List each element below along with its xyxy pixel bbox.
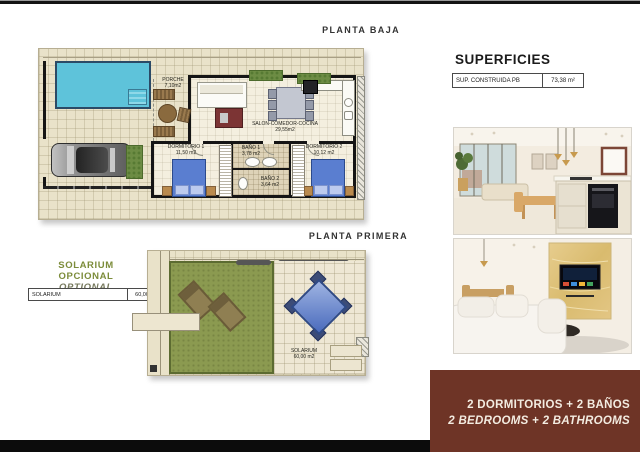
pillow xyxy=(329,185,343,195)
porch-chair-top xyxy=(153,89,175,100)
room-name: DORMITORIO 1 xyxy=(168,144,205,150)
washbasin-icon xyxy=(245,157,260,167)
footer-line-es: 2 DORMITORIOS + 2 BAÑOS xyxy=(430,397,630,413)
car-windshield xyxy=(67,146,74,174)
swimming-pool xyxy=(55,61,151,109)
ground-floor-title: PLANTA BAJA xyxy=(300,25,400,35)
kitchen-counter-side xyxy=(342,80,355,136)
media-unit-icon xyxy=(215,108,243,128)
superficies-label: SUP. CONSTRUIDA PB xyxy=(453,74,542,87)
dining-chair xyxy=(268,89,277,99)
kitchen-hob-icon xyxy=(344,111,353,120)
corner-pillar xyxy=(150,365,157,372)
neighbour-plot-hatch xyxy=(357,76,365,200)
ground-floor-plan: PORCHE 7,10m2 xyxy=(38,48,364,220)
photo-living-tv xyxy=(453,238,632,354)
solarium-bench xyxy=(330,359,362,371)
plot-left-wall xyxy=(43,61,46,139)
pillow xyxy=(314,185,328,195)
room-label-bano2: BAÑO 2 3,64 m2 xyxy=(249,176,291,189)
room-area: 10,12 m2 xyxy=(314,150,335,156)
room-name: SALON-COMEDOR-COCINA xyxy=(252,121,318,127)
room-label-porche: PORCHE 7,10m2 xyxy=(145,77,201,90)
solarium-bench xyxy=(330,345,362,357)
hedge-top-left xyxy=(249,70,283,81)
car-roof xyxy=(76,147,108,173)
glass-balustrade xyxy=(236,260,271,265)
room-name: SOLARIUM xyxy=(291,348,317,354)
solarium-note-es: SOLARIUM OPCIONAL xyxy=(36,260,136,282)
dining-table-icon xyxy=(276,87,306,119)
porch-chair-bottom xyxy=(153,126,175,137)
kitchen-island xyxy=(554,176,631,234)
bottom-border-bar xyxy=(0,440,430,452)
dining-chair xyxy=(305,100,314,110)
solarium-table-label: SOLARIUM xyxy=(29,289,127,300)
pool-steps xyxy=(128,89,147,105)
sofa-cushions xyxy=(200,85,243,94)
kitchen-sink-icon xyxy=(344,98,353,107)
superficies-value: 73,38 m² xyxy=(542,74,583,87)
room-area: 3,78 m2 xyxy=(242,151,260,157)
room-name: BAÑO 1 xyxy=(242,145,260,151)
solarium-table: SOLARIUM 60,00 m² xyxy=(28,288,165,301)
room-name: BAÑO 2 xyxy=(261,176,279,182)
room-label-bano1: BAÑO 1 3,78 m2 xyxy=(227,145,275,158)
brochure-page: PLANTA BAJA PLANTA PRIMERA PORCHE 7,10m2 xyxy=(0,0,640,452)
room-name: DORMITORIO 2 xyxy=(306,144,343,150)
porch-round-table xyxy=(158,104,177,123)
photo-kitchen-living-art xyxy=(454,128,631,234)
room-label-solarium: SOLARIUM 60,00 m2 xyxy=(282,348,326,361)
car-rear-window xyxy=(110,148,115,172)
nightstand xyxy=(206,186,216,196)
sofa-icon xyxy=(197,82,247,108)
dining-chair xyxy=(305,111,314,121)
media-unit-detail xyxy=(220,113,228,123)
nightstand xyxy=(345,186,354,196)
garden-planter xyxy=(126,145,143,179)
room-area: 11,50 m2 xyxy=(176,150,196,156)
room-area: 29,55m2 xyxy=(275,127,294,133)
toilet-icon xyxy=(238,177,248,190)
top-border-bar xyxy=(0,0,640,4)
room-label-dormitorio1: DORMITORIO 1 11,50 m2 xyxy=(157,144,215,157)
white-sofa xyxy=(454,295,566,353)
nightstand xyxy=(304,186,313,196)
pillow xyxy=(175,185,189,195)
room-label-salon: SALON-COMEDOR-COCINA 29,55m2 xyxy=(245,121,325,134)
footer-banner: 2 DORMITORIOS + 2 BAÑOS 2 BEDROOMS + 2 B… xyxy=(430,370,640,452)
superficies-heading: SUPERFICIES xyxy=(455,52,551,67)
nightstand xyxy=(162,186,172,196)
room-area: 7,10m2 xyxy=(165,83,182,89)
car-top-view xyxy=(51,143,131,177)
footer-line-en: 2 BEDROOMS + 2 BATHROOMS xyxy=(430,413,630,429)
first-floor-title: PLANTA PRIMERA xyxy=(288,231,408,241)
photo-living-tv-art xyxy=(454,239,631,353)
bed-icon-dorm1 xyxy=(172,159,206,197)
bed-icon-dorm2 xyxy=(311,159,345,197)
room-name: PORCHE xyxy=(162,77,183,83)
washbasin-icon xyxy=(262,157,277,167)
dining-chair xyxy=(268,111,277,121)
first-floor-plan: SOLARIUM 60,00 m2 xyxy=(147,250,366,376)
room-area: 3,64 m2 xyxy=(261,182,279,188)
dining-chair xyxy=(268,100,277,110)
plot-top-line xyxy=(43,57,361,58)
pillow xyxy=(190,185,204,195)
kitchen-appliance-icon xyxy=(303,80,318,94)
superficies-table: SUP. CONSTRUIDA PB 73,38 m² xyxy=(452,73,584,88)
stair-bulkhead xyxy=(132,313,200,331)
room-label-dormitorio2: DORMITORIO 2 10,12 m2 xyxy=(295,144,353,157)
room-area: 60,00 m2 xyxy=(294,354,315,360)
plot-bottom-wall xyxy=(43,186,153,189)
photo-kitchen-living xyxy=(453,127,632,235)
